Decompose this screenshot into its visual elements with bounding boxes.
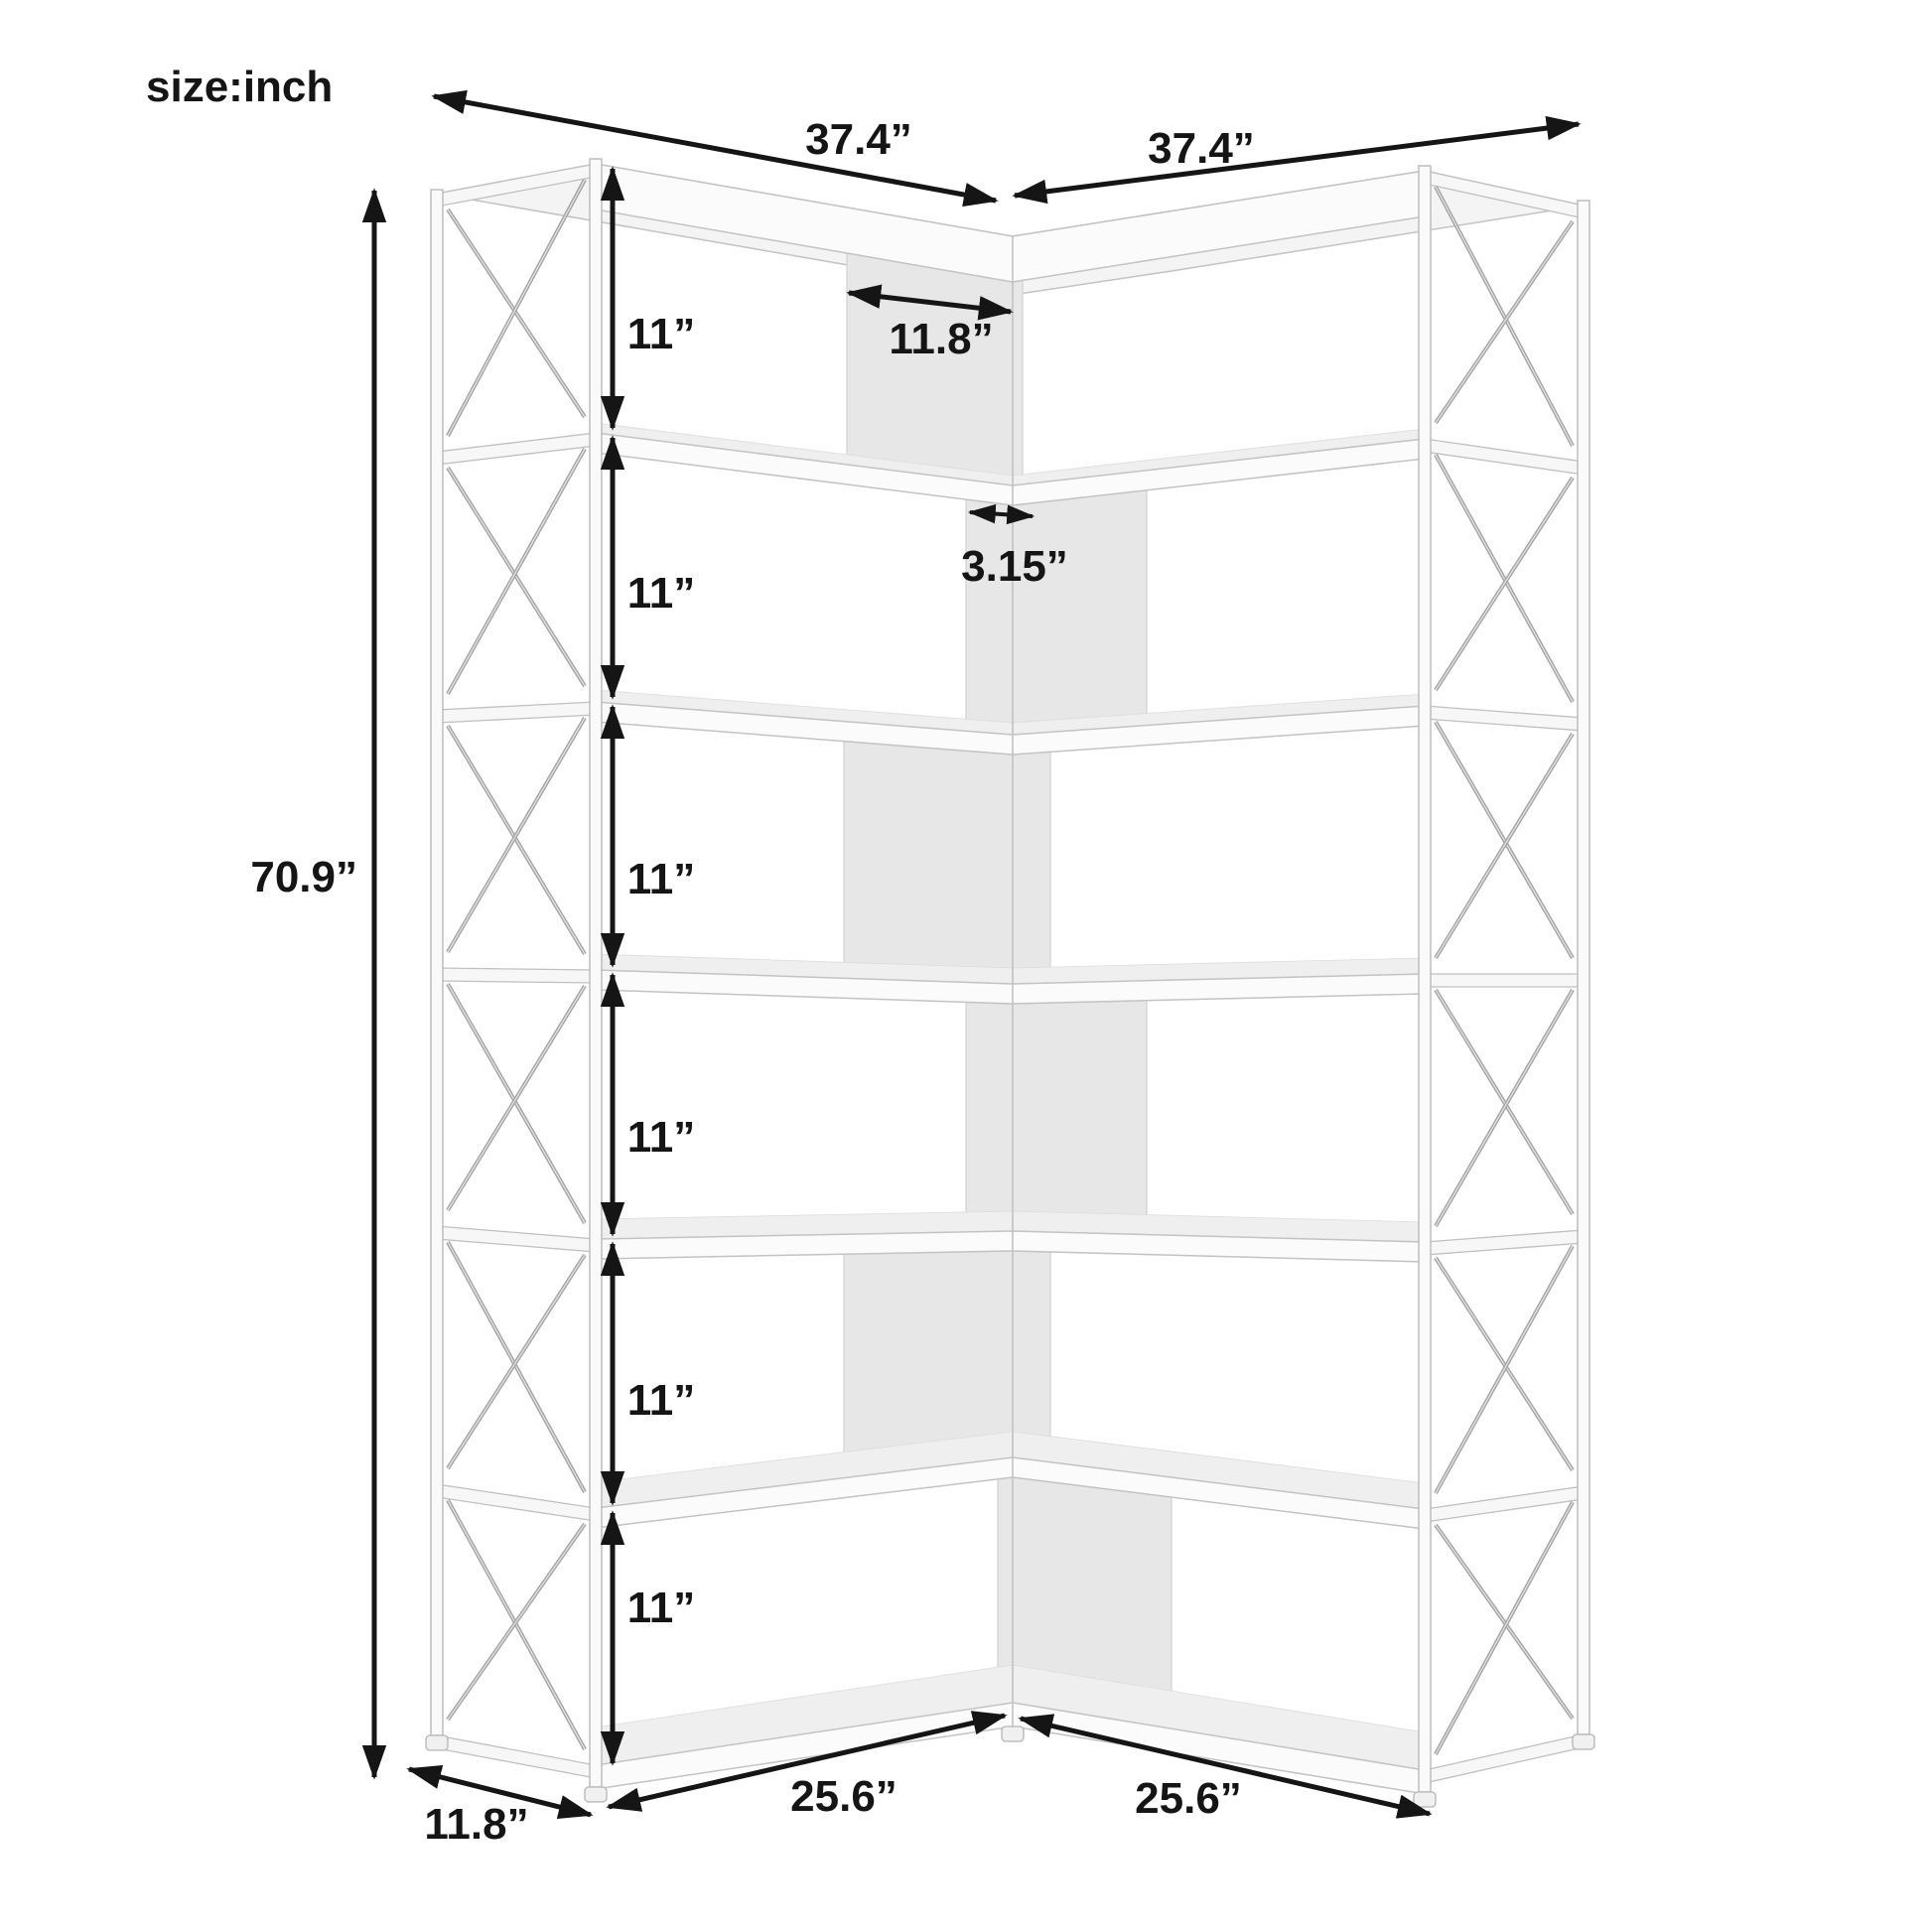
frame-post [1419,166,1431,1792]
bookshelf-illustration [426,159,1594,1807]
side-depth-label: 11.8” [424,1800,528,1849]
foot [426,1735,448,1750]
x-brace-rod-highlight [448,449,585,694]
side-rail [437,968,596,983]
bookshelf-dimension-diagram: size:inch 37.4” 37.4” 70.9” 11” 11” 11” … [0,0,1932,1932]
x-brace-rod-highlight [448,1524,585,1720]
x-brace-rod-highlight [1436,221,1573,423]
x-brace-rod-highlight [448,1255,585,1468]
shelf-gap-label-2: 11” [627,569,696,618]
x-brace-rod-highlight [1436,1246,1573,1493]
side-rail [1425,1230,1584,1255]
shelf-gap-label-1: 11” [627,310,696,358]
frame-post [590,159,602,1787]
shelf-gap-label-6: 11” [627,1584,696,1632]
shelf-gap-label-4: 11” [627,1113,696,1162]
bottom-width-left-label: 25.6” [790,1772,897,1821]
x-brace-rod-highlight [448,180,585,436]
top-width-right-label: 37.4” [1148,124,1255,173]
x-brace-rod-highlight [1436,1258,1573,1470]
back-panel [966,1001,1147,1235]
top-width-left-label: 37.4” [805,115,912,164]
dim-arrow-top-width-right [1015,124,1579,196]
side-rail [437,433,596,465]
x-brace-rod-highlight [448,209,585,417]
side-rail [1425,439,1584,475]
x-brace-rod-highlight [1436,478,1573,690]
side-rail [437,1735,596,1778]
x-brace-rod-highlight [1436,455,1573,702]
frame-post [431,190,443,1735]
back-panel [966,490,1147,735]
x-brace-rod-highlight [1436,1502,1573,1754]
side-rail [1425,706,1584,731]
side-rail [437,1484,596,1521]
back-panel [844,742,1050,984]
units-label: size:inch [146,63,333,111]
shelf-gap-label-3: 11” [627,855,696,903]
x-brace-rod-highlight [1436,187,1573,446]
side-rail [437,1226,596,1252]
total-height-label: 70.9” [250,853,357,901]
corner-width-label: 11.8” [889,315,993,363]
x-brace-rod-highlight [448,1242,585,1492]
side-rail [437,702,596,723]
frame-post [1578,201,1589,1734]
side-rail [1425,974,1584,987]
bottom-width-right-label: 25.6” [1135,1774,1242,1823]
foot [1573,1734,1594,1749]
side-rail [1425,1486,1584,1522]
side-rail [1425,1734,1584,1783]
x-brace-rod-highlight [1436,1525,1573,1719]
back-panel [847,253,1023,485]
corner-offset-label: 3.15” [961,542,1068,591]
dimension-diagram-page: size:inch 37.4” 37.4” 70.9” 11” 11” 11” … [0,0,1932,1932]
foot [1002,1726,1024,1741]
shelf-gap-label-5: 11” [627,1376,696,1425]
foot [585,1787,607,1802]
foot [1414,1792,1436,1807]
